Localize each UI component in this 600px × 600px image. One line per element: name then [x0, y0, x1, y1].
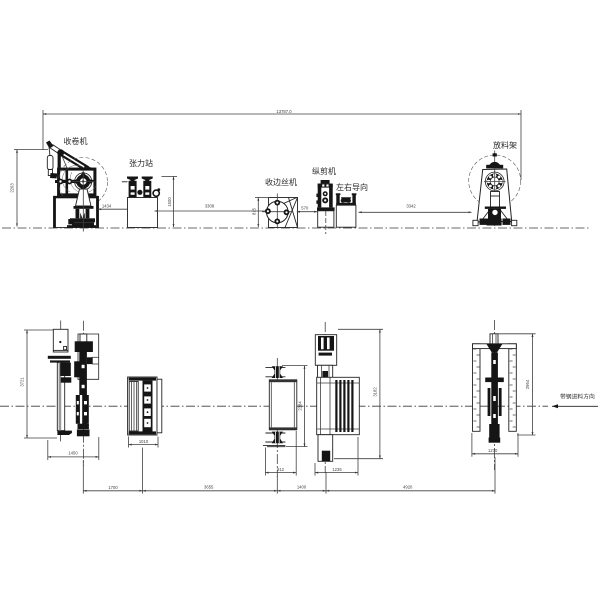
svg-text:13787.0: 13787.0 [276, 109, 292, 114]
svg-text:912: 912 [277, 467, 285, 472]
svg-text:带钢进料方向: 带钢进料方向 [560, 393, 595, 401]
svg-text:放料架: 放料架 [493, 140, 517, 150]
svg-text:3655: 3655 [204, 484, 214, 489]
svg-text:815: 815 [251, 207, 256, 215]
svg-text:收边丝机: 收边丝机 [265, 177, 297, 187]
svg-text:1400: 1400 [297, 485, 307, 490]
svg-text:纵剪机: 纵剪机 [312, 166, 336, 176]
svg-text:1270: 1270 [488, 448, 498, 453]
svg-text:张力站: 张力站 [129, 158, 153, 168]
svg-text:3342: 3342 [406, 204, 416, 209]
svg-text:1235: 1235 [332, 467, 342, 472]
svg-text:1010: 1010 [139, 439, 149, 444]
svg-text:3721: 3721 [20, 377, 25, 387]
svg-text:1500: 1500 [167, 197, 172, 207]
svg-text:收卷机: 收卷机 [64, 136, 88, 146]
svg-text:1434: 1434 [102, 203, 112, 208]
svg-text:4920: 4920 [403, 485, 413, 490]
svg-text:570: 570 [301, 205, 309, 210]
svg-text:2263: 2263 [10, 183, 15, 193]
svg-text:2384: 2384 [298, 401, 303, 411]
svg-text:1700: 1700 [108, 485, 118, 490]
svg-text:1450: 1450 [68, 451, 78, 456]
svg-text:左右导向: 左右导向 [336, 182, 368, 192]
svg-text:3308: 3308 [205, 204, 215, 209]
svg-text:2964: 2964 [525, 379, 530, 389]
svg-text:3182: 3182 [372, 387, 377, 397]
